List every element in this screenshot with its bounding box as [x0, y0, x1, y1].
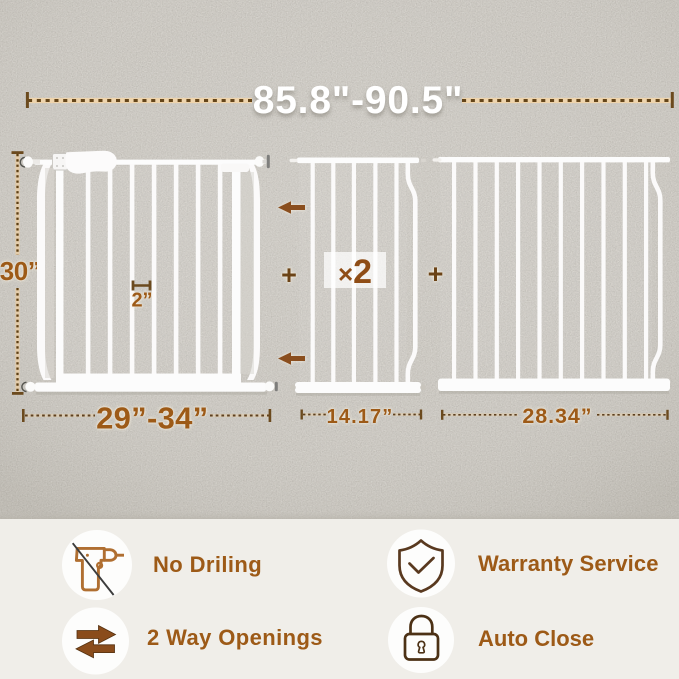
- svg-text:+: +: [281, 260, 297, 290]
- svg-text:2 Way Openings: 2 Way Openings: [147, 625, 323, 650]
- svg-text:2”: 2”: [131, 290, 152, 312]
- svg-text:Warranty Service: Warranty Service: [478, 551, 659, 576]
- svg-text:28.34”: 28.34”: [522, 404, 592, 428]
- svg-text:29”-34”: 29”-34”: [96, 401, 208, 436]
- svg-text:85.8"-90.5": 85.8"-90.5": [253, 79, 464, 122]
- svg-text:30”: 30”: [0, 256, 40, 286]
- svg-text:Auto Close: Auto Close: [478, 626, 594, 651]
- svg-text:No Driling: No Driling: [153, 552, 262, 577]
- svg-text:14.17”: 14.17”: [327, 406, 394, 428]
- svg-text:+: +: [428, 259, 444, 289]
- svg-text:×2: ×2: [338, 253, 372, 291]
